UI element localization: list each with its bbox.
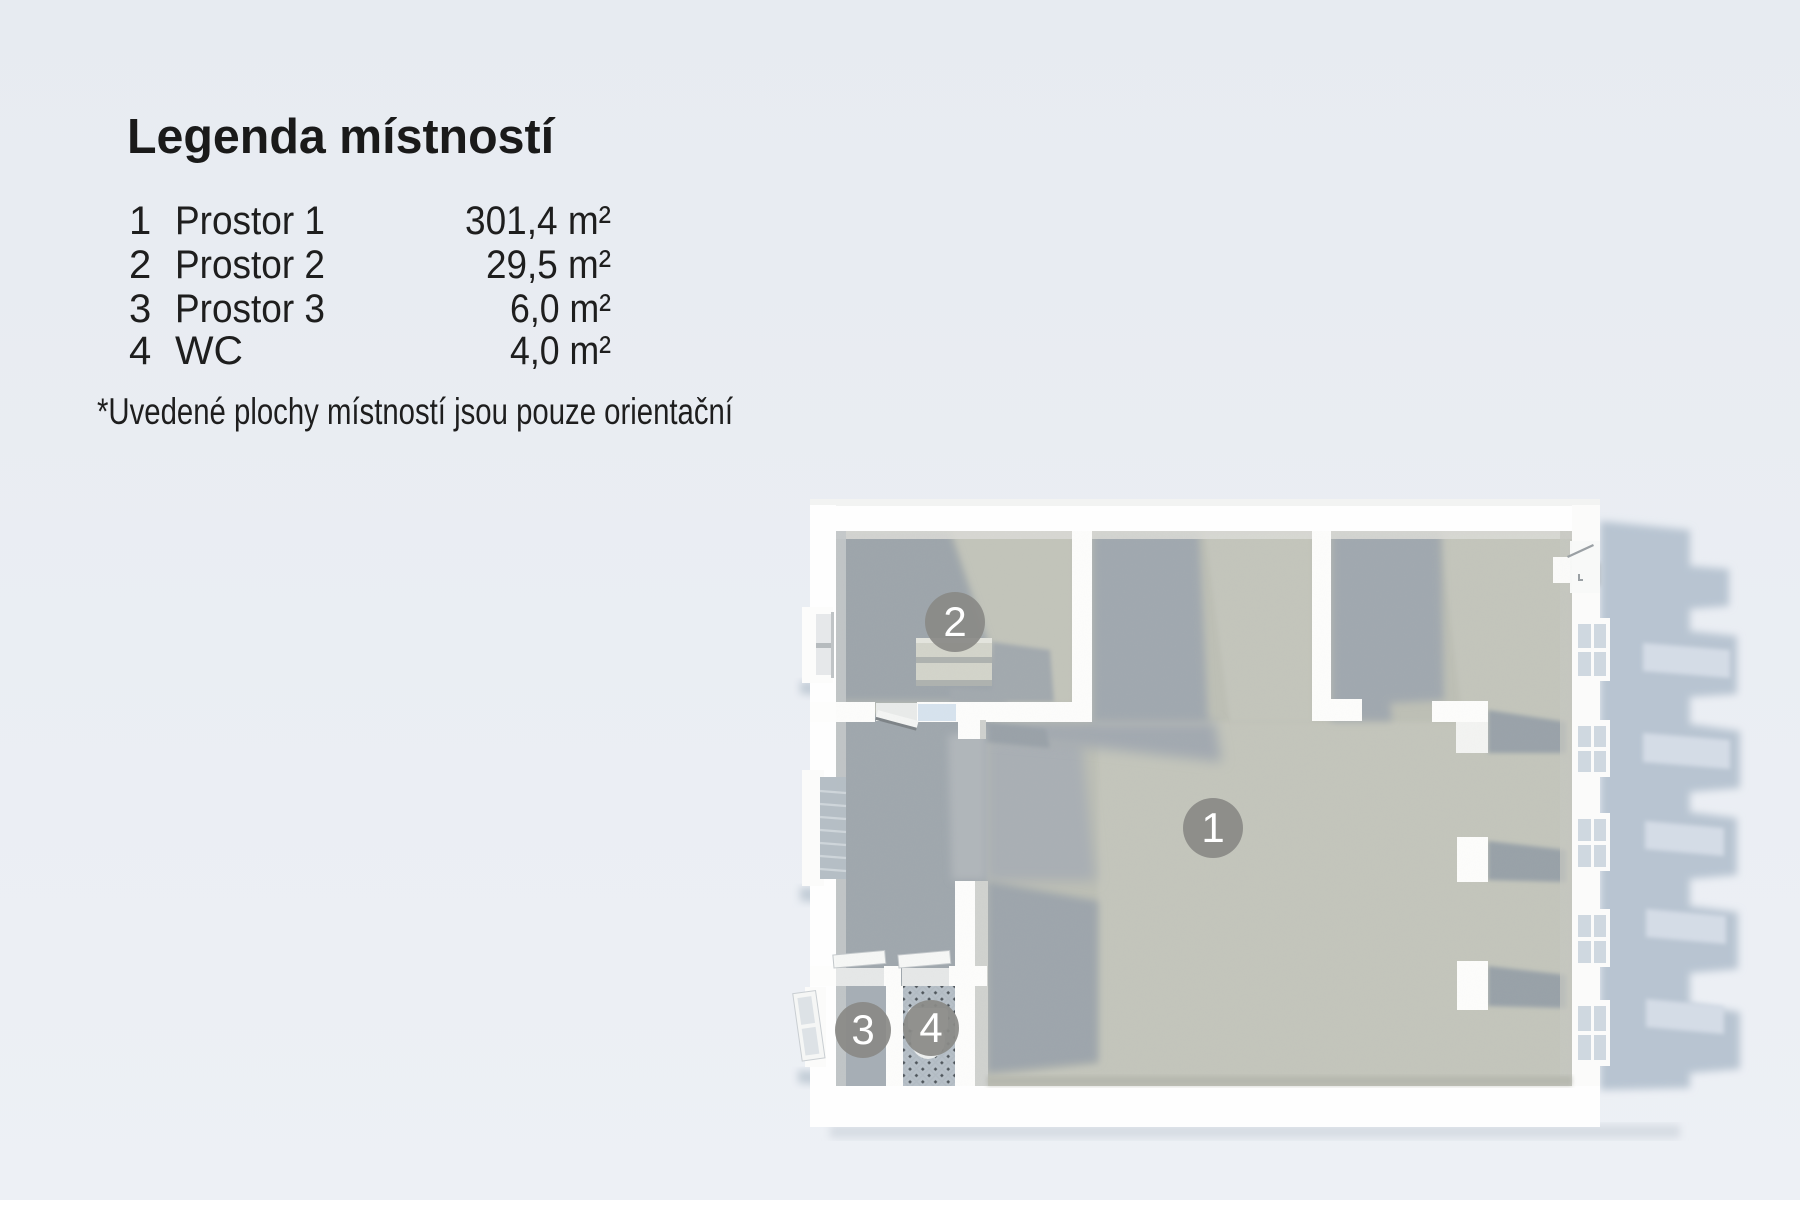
svg-text:1: 1 [129, 199, 151, 243]
svg-text:6,0 m²: 6,0 m² [510, 287, 611, 331]
svg-text:2: 2 [129, 243, 151, 287]
svg-text:4: 4 [919, 1004, 942, 1051]
svg-text:29,5 m²: 29,5 m² [486, 243, 611, 287]
svg-text:*Uvedené plochy místností jsou: *Uvedené plochy místností jsou pouze ori… [97, 391, 734, 432]
svg-text:1: 1 [1201, 804, 1224, 851]
svg-text:2: 2 [943, 598, 966, 645]
svg-text:4,0 m²: 4,0 m² [510, 329, 611, 373]
svg-text:Prostor 3: Prostor 3 [175, 287, 325, 331]
svg-text:3: 3 [129, 287, 151, 331]
svg-text:Prostor 2: Prostor 2 [175, 243, 325, 287]
svg-text:WC: WC [175, 329, 243, 373]
svg-text:301,4 m²: 301,4 m² [465, 199, 611, 243]
svg-text:3: 3 [851, 1006, 874, 1053]
svg-text:Prostor 1: Prostor 1 [175, 199, 325, 243]
svg-text:4: 4 [129, 329, 151, 373]
svg-text:Legenda místností: Legenda místností [127, 110, 555, 164]
